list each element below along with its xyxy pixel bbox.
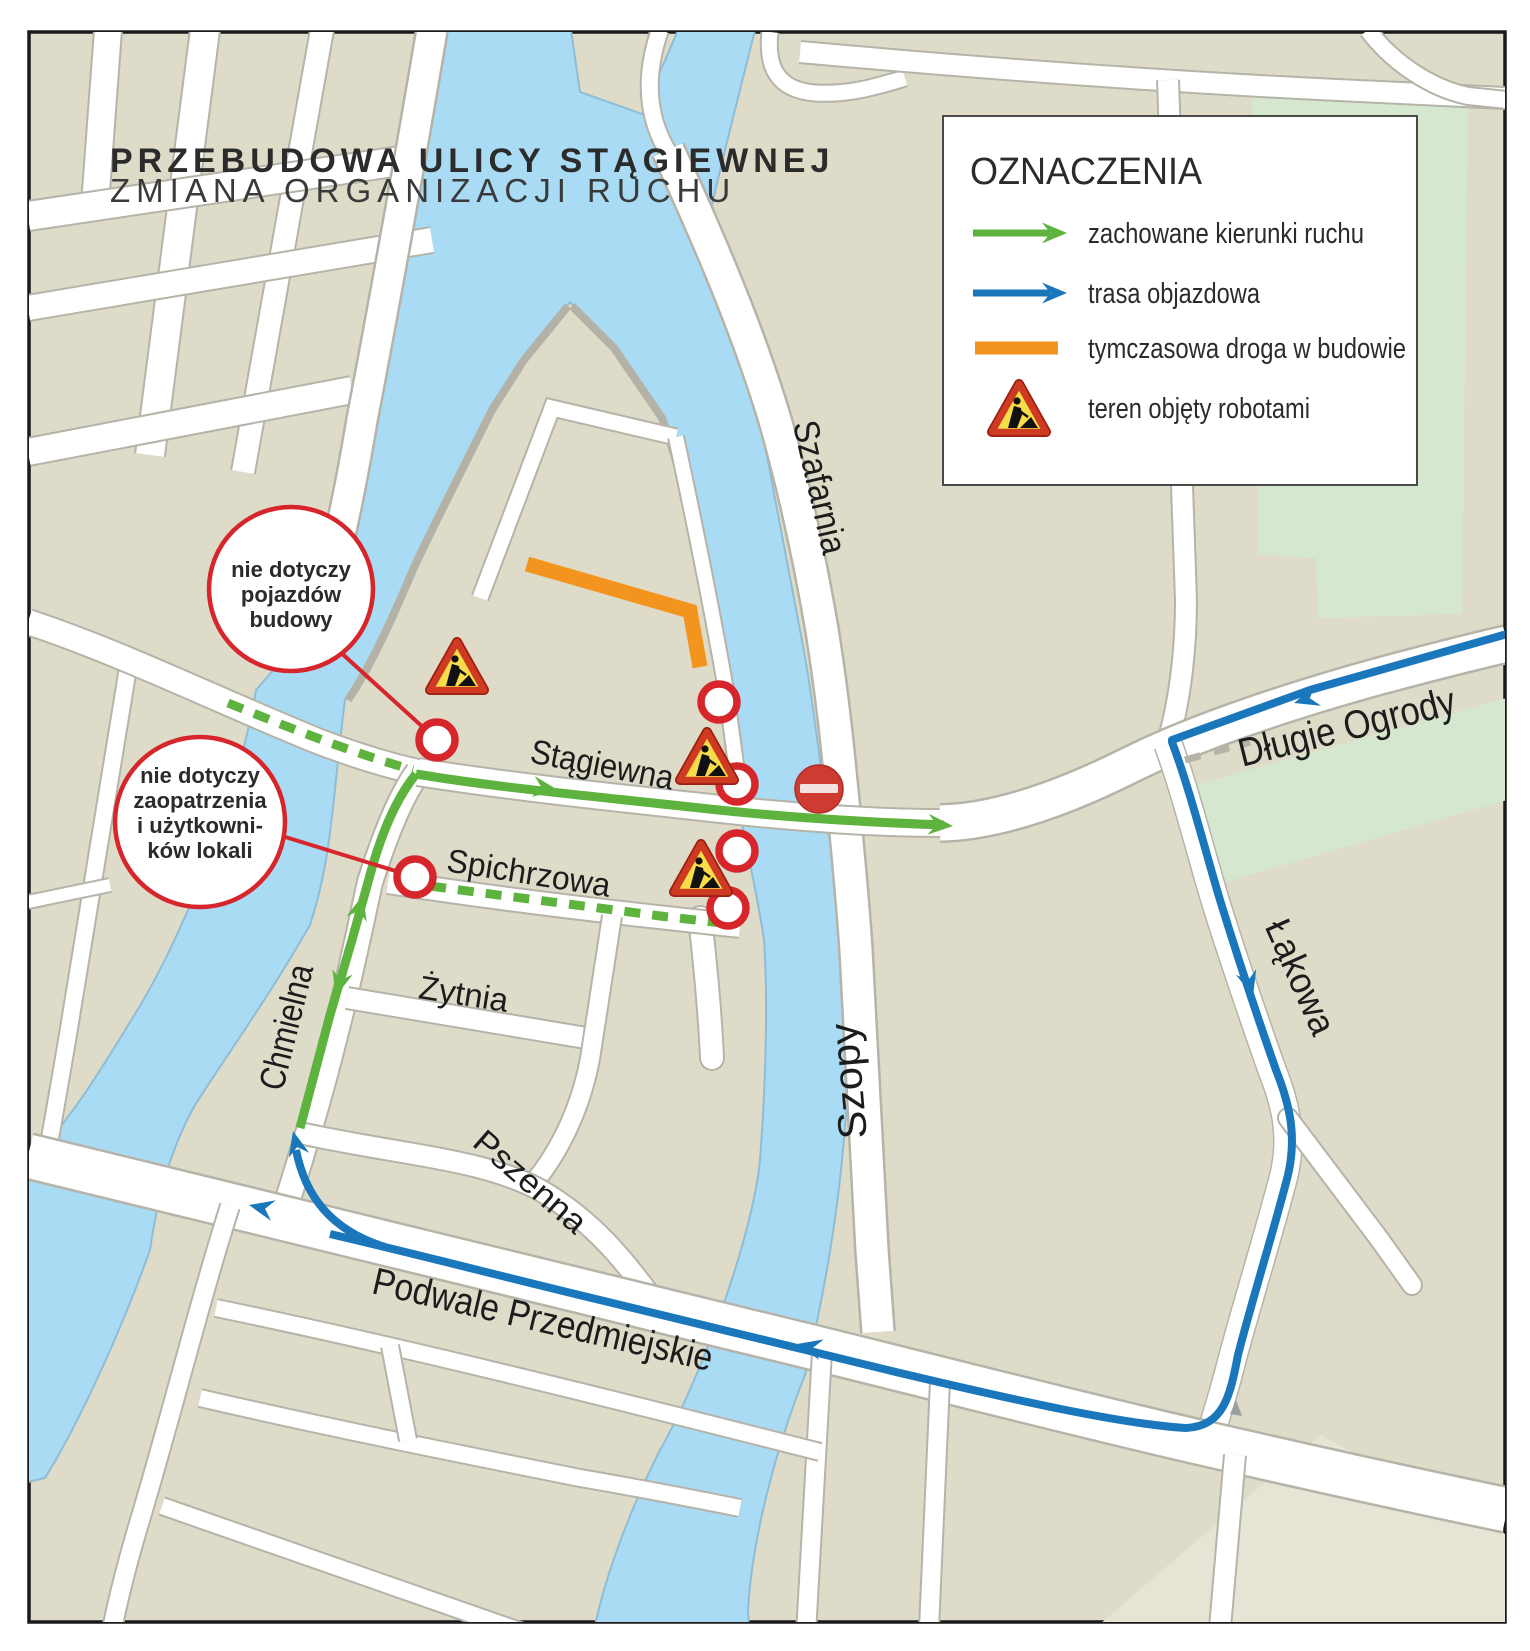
svg-text:ków lokali: ków lokali <box>147 838 252 863</box>
svg-text:nie dotyczy: nie dotyczy <box>140 763 261 788</box>
svg-text:budowy: budowy <box>249 607 333 632</box>
svg-text:zachowane kierunki ruchu: zachowane kierunki ruchu <box>1088 218 1364 250</box>
svg-text:pojazdów: pojazdów <box>241 582 342 607</box>
svg-text:tymczasowa droga w budowie: tymczasowa droga w budowie <box>1088 333 1406 365</box>
svg-text:zaopatrzenia: zaopatrzenia <box>133 788 267 813</box>
svg-text:trasa objazdowa: trasa objazdowa <box>1088 278 1261 310</box>
svg-text:teren objęty robotami: teren objęty robotami <box>1088 393 1310 425</box>
svg-text:i użytkowni-: i użytkowni- <box>137 813 263 838</box>
svg-text:nie dotyczy: nie dotyczy <box>231 557 352 582</box>
svg-text:OZNACZENIA: OZNACZENIA <box>970 151 1203 193</box>
svg-text:ZMIANA ORGANIZACJI RUCHU: ZMIANA ORGANIZACJI RUCHU <box>110 172 736 209</box>
